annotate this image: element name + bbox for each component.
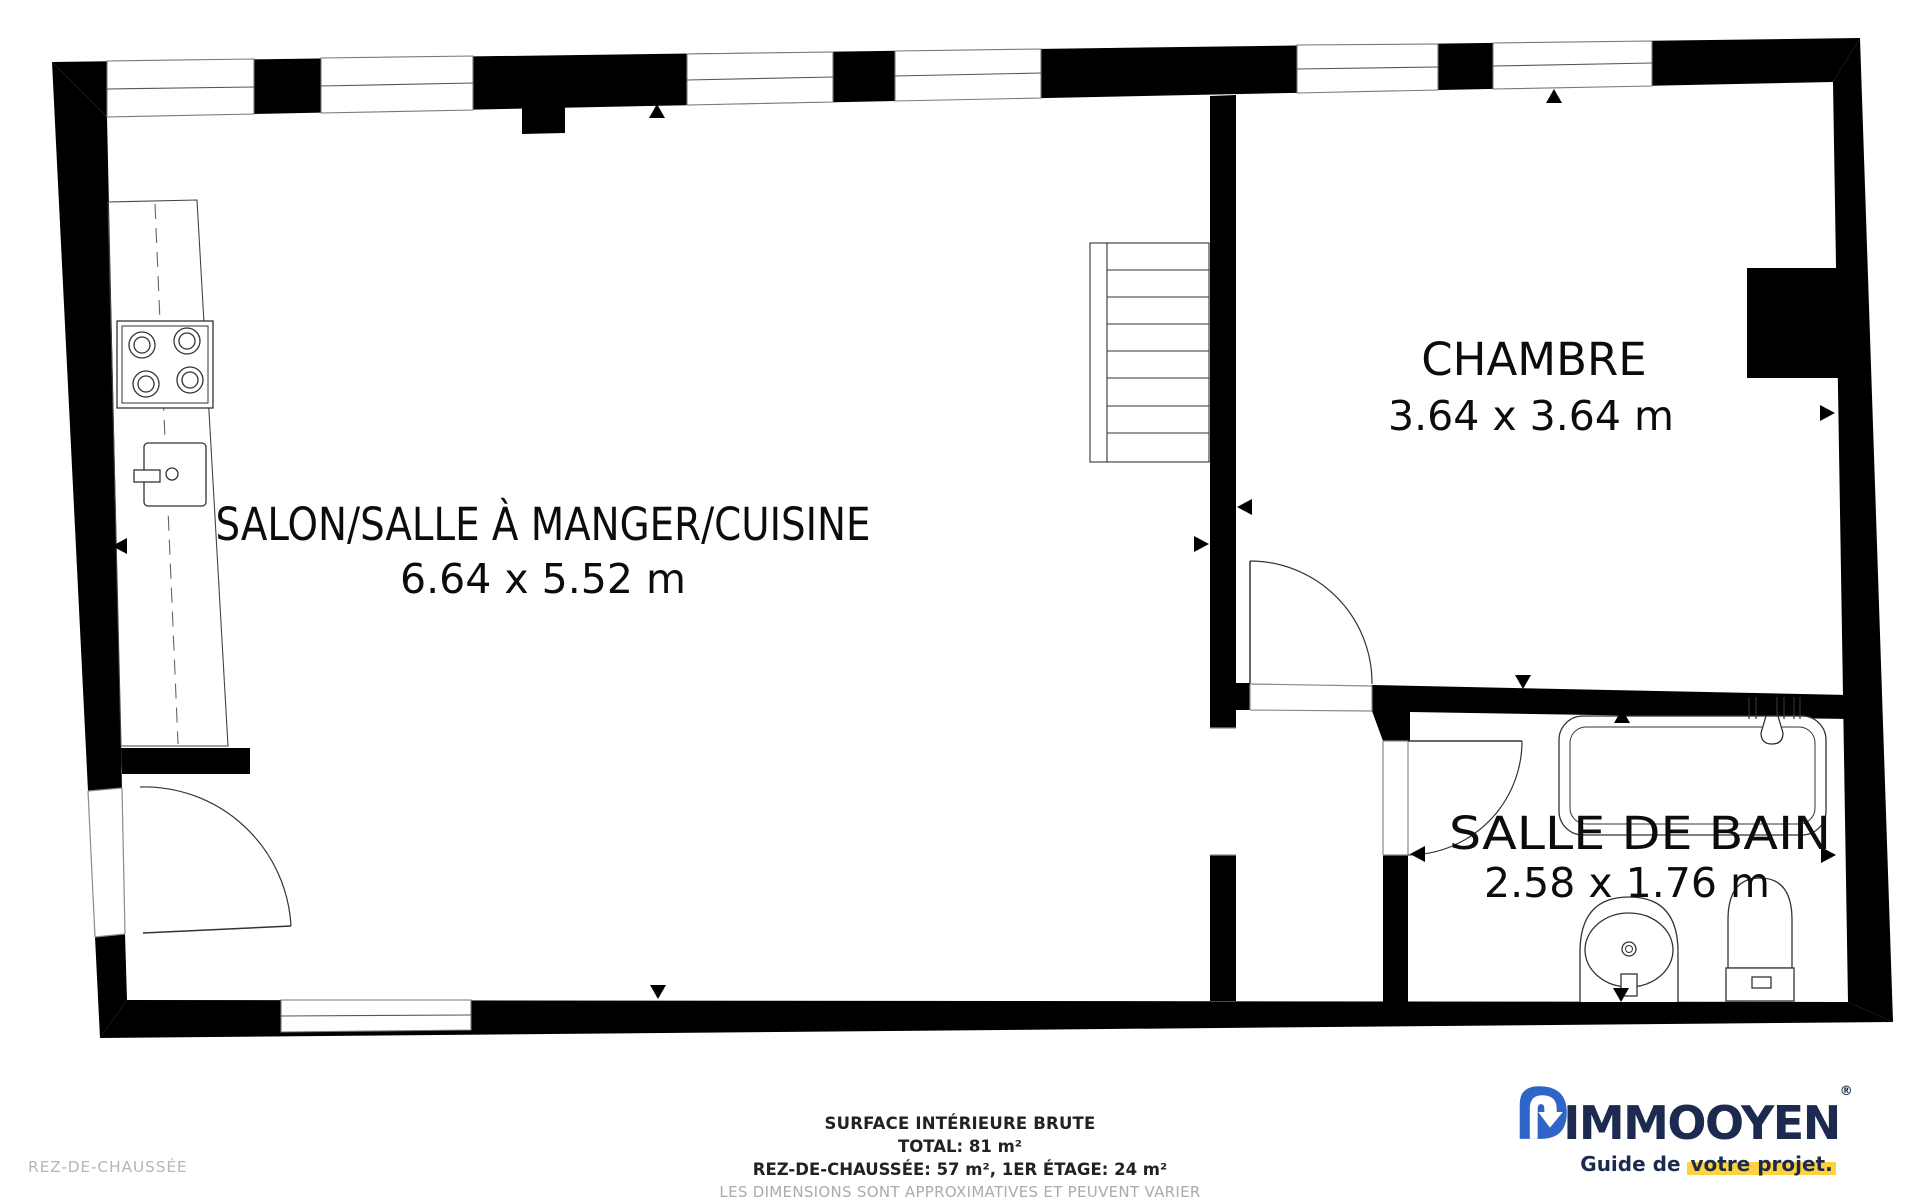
dimension-arrow <box>1546 89 1562 103</box>
surface-breakdown: REZ-DE-CHAUSSÉE: 57 m², 1ER ÉTAGE: 24 m² <box>719 1160 1200 1179</box>
bedroom-label: CHAMBRE <box>1421 333 1646 386</box>
wall-bedroom-jamb <box>1236 683 1250 710</box>
brand-logo: IMMO OYEN ® Guide de votre projet. <box>1512 1082 1904 1176</box>
wall-kitchen-stub <box>121 748 250 774</box>
brand-suffix: OYEN <box>1705 1100 1840 1146</box>
chimney-block <box>1747 268 1842 378</box>
window <box>281 1000 471 1032</box>
living-room-label: SALON/SALLE À MANGER/CUISINE <box>216 498 871 551</box>
dimension-arrow <box>1194 536 1209 552</box>
brand-tagline: Guide de votre projet. <box>1512 1152 1904 1176</box>
brand-d-house-arrow-icon <box>1513 1082 1569 1142</box>
dimension-arrow <box>1410 846 1425 862</box>
dimension-arrow <box>1515 675 1531 689</box>
dimension-arrow <box>1237 499 1252 515</box>
surface-total: TOTAL: 81 m² <box>719 1137 1200 1156</box>
stove <box>117 321 213 408</box>
dimension-arrow <box>649 104 665 118</box>
bathroom-label: SALLE DE BAIN <box>1449 807 1831 860</box>
dimension-arrow <box>1820 405 1835 421</box>
living-room-dimensions: 6.64 x 5.52 m <box>400 555 686 603</box>
wall-divider-upper <box>1210 95 1236 728</box>
wall-bathroom-left-lower <box>1383 855 1408 1002</box>
bedroom-door-swing <box>1250 561 1372 684</box>
brand-prefix: IMMO <box>1563 1100 1705 1146</box>
surface-summary: SURFACE INTÉRIEURE BRUTE TOTAL: 81 m² RE… <box>719 1114 1200 1200</box>
surface-disclaimer: LES DIMENSIONS SONT APPROXIMATIVES ET PE… <box>719 1183 1200 1200</box>
bathroom-dimensions: 2.58 x 1.76 m <box>1484 859 1770 907</box>
wall-divider-lower <box>1210 855 1236 1001</box>
staircase <box>1090 243 1209 462</box>
registered-mark: ® <box>1840 1084 1853 1099</box>
brand-wordmark: IMMO OYEN ® <box>1512 1082 1904 1146</box>
kitchen-sink <box>134 443 206 506</box>
wall-right <box>1833 38 1893 1022</box>
surface-title: SURFACE INTÉRIEURE BRUTE <box>719 1114 1200 1133</box>
wall-pier-top <box>522 96 565 134</box>
wall-left-upper <box>52 62 122 791</box>
window <box>687 52 833 105</box>
room-labels: SALON/SALLE À MANGER/CUISINE 6.64 x 5.52… <box>216 333 1832 907</box>
bedroom-dimensions: 3.64 x 3.64 m <box>1388 392 1674 440</box>
doors <box>140 561 1522 933</box>
tagline-prefix: Guide de <box>1580 1152 1687 1176</box>
washbasin <box>1580 897 1678 1002</box>
window <box>1297 44 1438 93</box>
window <box>321 56 473 113</box>
tagline-highlight: votre projet. <box>1687 1152 1835 1176</box>
floor-label: REZ-DE-CHAUSSÉE <box>28 1158 188 1176</box>
entry-door-swing <box>140 787 291 933</box>
window <box>1493 41 1652 89</box>
window <box>895 49 1041 101</box>
window <box>107 59 254 117</box>
kitchen-counter <box>108 200 228 746</box>
dimension-arrow <box>650 985 666 999</box>
floor-plan: SALON/SALLE À MANGER/CUISINE 6.64 x 5.52… <box>0 0 1920 1060</box>
